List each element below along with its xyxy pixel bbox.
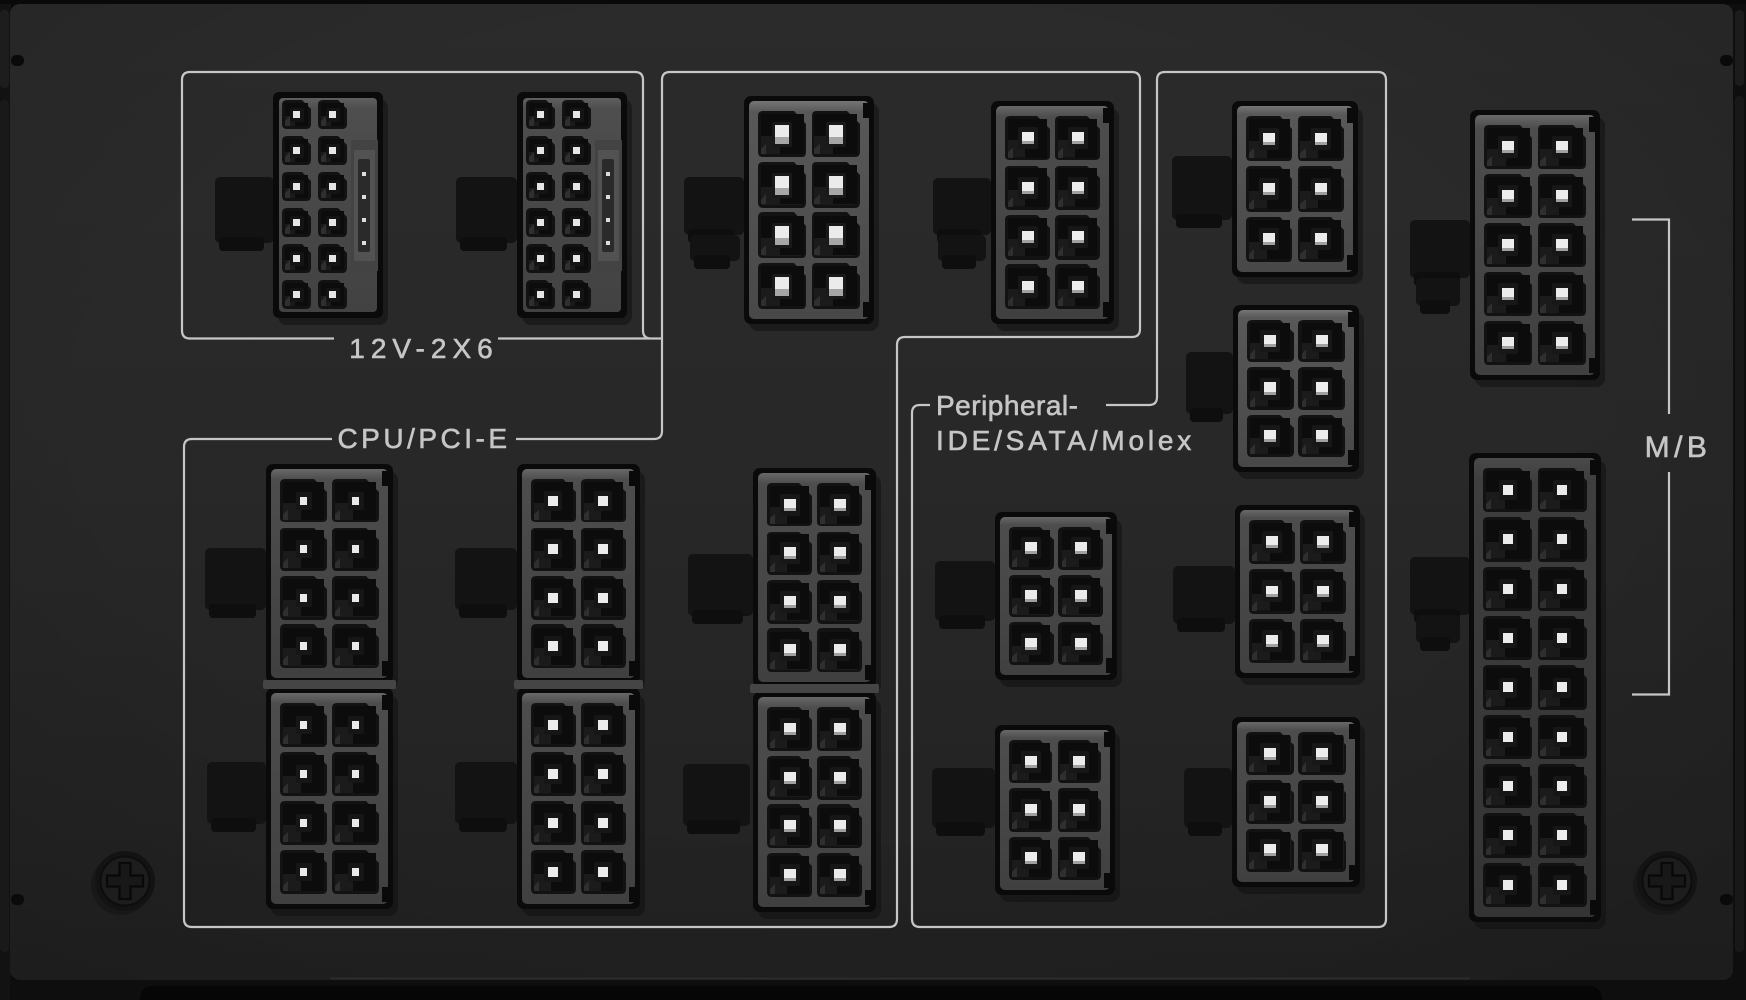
svg-text:M/B: M/B: [1645, 431, 1712, 464]
svg-text:IDE/SATA/Molex: IDE/SATA/Molex: [936, 425, 1195, 456]
svg-text:12V-2X6: 12V-2X6: [349, 333, 498, 364]
svg-text:CPU/PCI-E: CPU/PCI-E: [337, 423, 510, 454]
svg-text:Peripheral-: Peripheral-: [936, 390, 1078, 421]
